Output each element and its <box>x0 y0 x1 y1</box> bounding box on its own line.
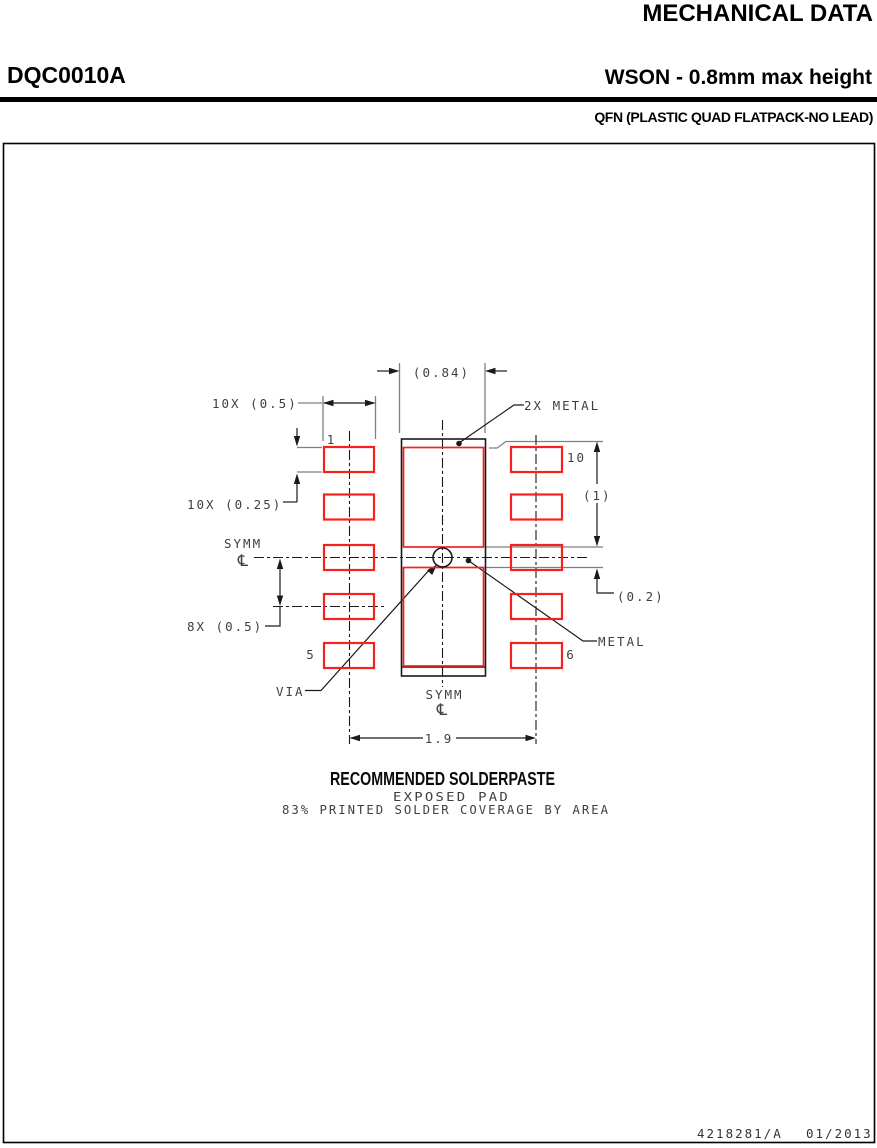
mechanical-drawing: (0.84) 2X METAL 10X (0.5) 1 10 (1) 10X (… <box>0 0 877 1148</box>
label-via: VIA <box>276 684 305 699</box>
document-number: 4218281/A <box>697 1126 783 1141</box>
label-2x-metal: 2X METAL <box>524 398 600 413</box>
pin-label-1: 1 <box>327 432 337 447</box>
dim-metal-span: (1) <box>583 488 612 503</box>
dim-pitch: 8X (0.5) <box>187 619 263 634</box>
revision-date: 01/2013 <box>806 1126 873 1141</box>
metal-dot <box>466 558 472 564</box>
caption-title: RECOMMENDED SOLDERPASTE <box>330 769 555 789</box>
exposed-pad-paste-bottom <box>404 568 484 667</box>
page-border <box>4 144 875 1143</box>
dim-paste-width: (0.84) <box>413 365 470 380</box>
dim-metal-strip: (0.2) <box>617 589 665 604</box>
pin-label-10: 10 <box>567 450 586 465</box>
centerline-symbol-left: ℄ <box>237 551 249 570</box>
pin-label-5: 5 <box>306 647 316 662</box>
caption-subtitle2: 83% PRINTED SOLDER COVERAGE BY AREA <box>282 802 610 817</box>
datasheet-page: MECHANICAL DATA DQC0010A WSON - 0.8mm ma… <box>0 0 877 1148</box>
centerline-symbol-bottom: ℄ <box>436 700 448 719</box>
via-arrowhead <box>427 565 437 576</box>
dim-row-span: 1.9 <box>425 731 454 746</box>
pin-label-6: 6 <box>566 647 576 662</box>
metal-2x-dot <box>456 441 462 447</box>
dim-pad-height: 10X (0.25) <box>187 497 282 512</box>
symm-label-left: SYMM <box>224 536 262 551</box>
label-metal: METAL <box>598 634 646 649</box>
exposed-pad-paste-top <box>404 448 484 548</box>
dim-pad-width: 10X (0.5) <box>212 396 298 411</box>
extension-lines <box>297 363 603 568</box>
